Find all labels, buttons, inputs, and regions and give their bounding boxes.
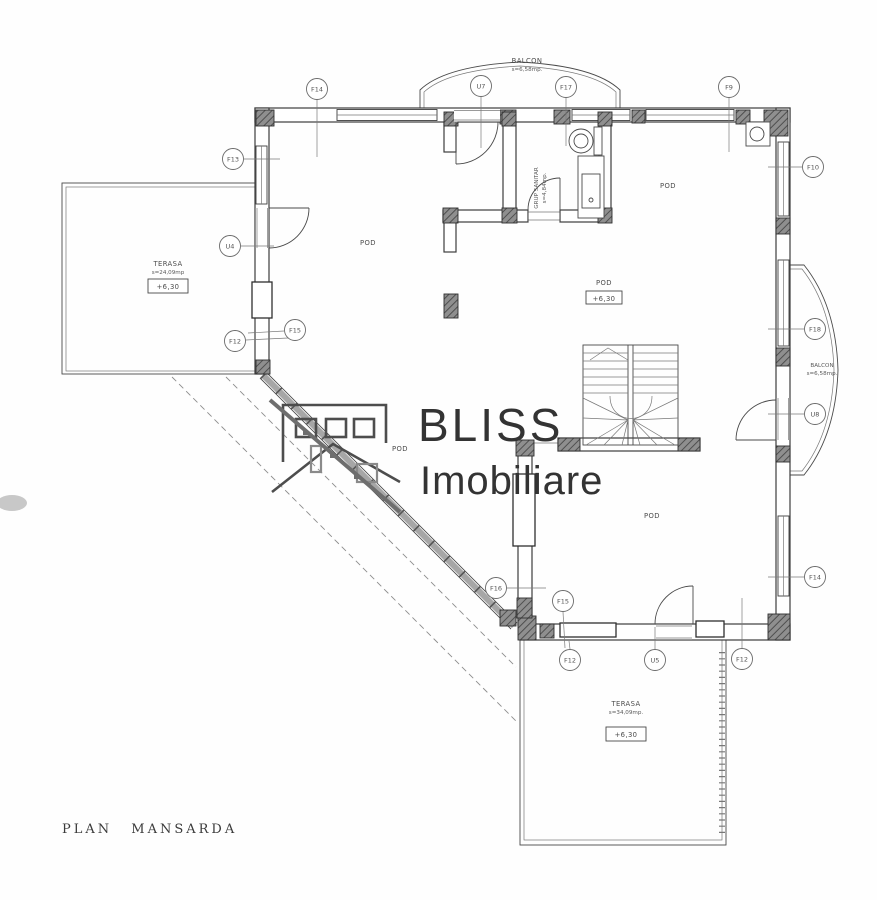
- room-label-grup-sanitar: GRUP SANITAR: [534, 167, 540, 209]
- page-title: PLAN MANSARDA: [62, 822, 237, 837]
- room-label-pod: POD: [392, 445, 408, 453]
- svg-text:F15: F15: [557, 597, 569, 605]
- area-label-balcon-right: s=6,58mp.: [807, 371, 838, 377]
- svg-text:F17: F17: [560, 83, 572, 91]
- marker-f16: F16: [486, 578, 547, 599]
- marker-f13: F13: [223, 149, 281, 170]
- room-label-balcon-right: BALCON: [810, 363, 833, 369]
- interior-walls: [443, 122, 700, 625]
- svg-text:F18: F18: [809, 325, 821, 333]
- level-label-pod-center: +6,30: [593, 295, 616, 303]
- level-label-terasa-bottom: +6,30: [615, 731, 638, 739]
- svg-text:F16: F16: [490, 584, 502, 592]
- logo-subtitle: Imobiliare: [420, 459, 603, 503]
- scan-smudge: [0, 495, 27, 511]
- marker-f12: F12: [560, 641, 581, 671]
- logo: BLISS Imobiliare: [270, 399, 603, 512]
- svg-text:F14: F14: [311, 85, 323, 93]
- terrace-bottom: [520, 640, 726, 845]
- room-label-terasa-bottom: TERASA: [610, 700, 640, 708]
- area-label-terasa-bottom: s=34,09mp.: [609, 710, 644, 716]
- floor-plan-page: BLISS Imobiliare BALCON s=6,58mp. BALCON…: [0, 0, 877, 900]
- room-label-pod: POD: [660, 182, 676, 190]
- room-label-pod-center: POD: [596, 279, 612, 287]
- room-label-pod: POD: [360, 239, 376, 247]
- logo-name: BLISS: [418, 399, 563, 451]
- area-label-grup-sanitar: s=4,84mp.: [542, 172, 548, 203]
- room-label-balcon-top: BALCON: [512, 57, 543, 65]
- area-label-balcon-top: s=6,58mp.: [512, 67, 543, 73]
- svg-text:F15: F15: [289, 326, 301, 334]
- room-label-terasa-left: TERASA: [152, 260, 182, 268]
- svg-text:F14: F14: [809, 573, 821, 581]
- room-label-pod: POD: [644, 512, 660, 520]
- balcony-right: [790, 265, 838, 475]
- bathroom-fixtures: [569, 127, 604, 218]
- logo-house-icon: [270, 400, 400, 512]
- svg-text:F12: F12: [564, 656, 576, 664]
- svg-text:U7: U7: [477, 82, 486, 90]
- svg-text:F9: F9: [725, 83, 733, 91]
- area-label-terasa-left: s=24,09mp: [152, 270, 185, 276]
- staircase: [583, 345, 678, 445]
- svg-text:F13: F13: [227, 155, 239, 163]
- svg-text:U4: U4: [226, 242, 235, 250]
- svg-text:F12: F12: [736, 655, 748, 663]
- svg-text:F10: F10: [807, 163, 819, 171]
- floor-plan-canvas: BLISS Imobiliare BALCON s=6,58mp. BALCON…: [0, 0, 877, 900]
- svg-text:U8: U8: [811, 410, 820, 418]
- level-label-terasa-left: +6,30: [157, 283, 180, 291]
- svg-text:F12: F12: [229, 337, 241, 345]
- svg-text:U5: U5: [651, 656, 660, 664]
